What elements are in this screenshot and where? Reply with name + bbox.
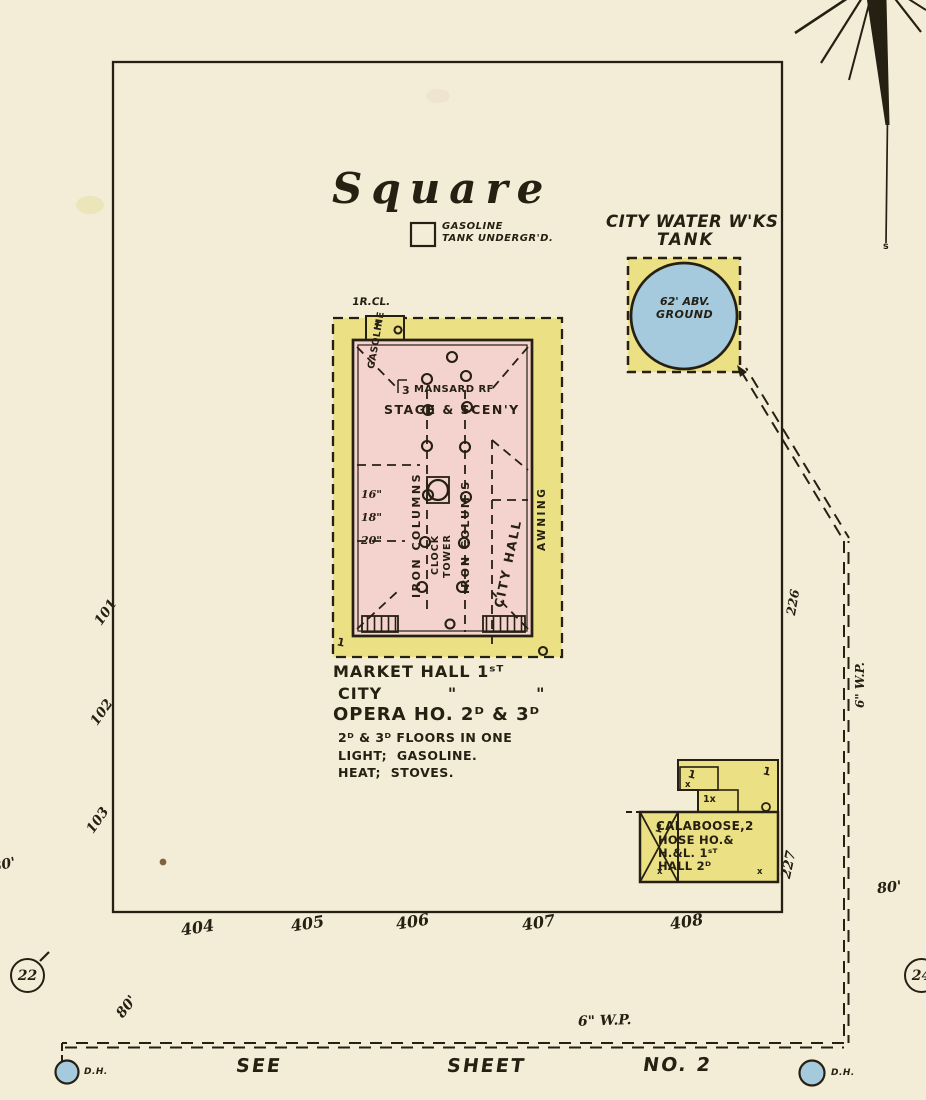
water-pipe-label-bottom: 6" W.P. — [578, 1013, 632, 1030]
clock-tower-label2: TOWER — [443, 534, 453, 578]
calaboose-line1: CALABOOSE,2 — [656, 820, 754, 833]
width-16: 16" — [361, 489, 382, 501]
stage-scenery-label: STAGE & SCEN'Y — [384, 403, 520, 416]
water-tank-elevation1: 62' ABV. — [660, 296, 710, 308]
square-title: Square — [332, 167, 552, 211]
mansard-roof-label: MANSARD RF — [414, 385, 494, 396]
rcl-label: 1R.CL. — [351, 297, 391, 308]
width-20: 20" — [361, 535, 382, 547]
calaboose-mark-x1: x — [685, 781, 690, 790]
see-sheet-word1: SEE — [235, 1057, 283, 1077]
caption-floors: 2ᴰ & 3ᴰ FLOORS IN ONE — [338, 731, 512, 744]
compass-south-label: s — [883, 242, 889, 252]
sheet-ref-tick — [40, 952, 49, 961]
water-tank-label: CITY WATER W'KS — [606, 213, 778, 230]
eighty-feet-right: 80' — [876, 879, 902, 897]
awning-label: AWNING — [537, 487, 548, 551]
caption-city: CITY " " — [338, 686, 545, 703]
gasoline-tank-symbol — [411, 223, 435, 246]
calaboose-mark-1x: 1x — [703, 795, 716, 805]
calaboose-main-x: x — [757, 868, 762, 877]
caption-light: LIGHT; GASOLINE. — [338, 749, 477, 762]
water-tank-label2: TANK — [657, 231, 714, 248]
sheet-ref-22-number: 22 — [18, 968, 37, 984]
water-tank-elevation2: GROUND — [656, 309, 713, 321]
xbox-x-mark: x — [657, 868, 662, 877]
caption-market-hall: MARKET HALL 1ˢᵀ — [333, 664, 504, 681]
calaboose-line2: HOSE HO.& — [658, 834, 734, 846]
caption-heat: HEAT; STOVES. — [338, 766, 454, 779]
story-mark: 3 — [402, 385, 410, 397]
calaboose-line3: H.&L. 1ˢᵀ — [658, 847, 718, 859]
water-pipe-label-vertical: 6" W.P. — [854, 662, 867, 708]
clock-tower-label1: CLOCK — [431, 535, 441, 575]
sheet-ref-22: 22 — [10, 958, 45, 993]
gasoline-note-line2: TANK UNDERGR'D. — [442, 234, 553, 245]
gasoline-note-line1: GASOLINE — [442, 222, 503, 233]
calaboose-line4: HALL 2ᴰ — [658, 860, 711, 872]
hydrant-label-right: D.H. — [831, 1069, 855, 1078]
width-18: 18" — [361, 512, 382, 524]
caption-opera: OPERA HO. 2ᴰ & 3ᴰ — [333, 706, 540, 725]
see-sheet-word2: SHEET — [446, 1057, 527, 1077]
iron-columns-mid-label: IRON COLUM'S — [460, 480, 472, 594]
sheet-ref-24-number: 24 — [912, 968, 926, 984]
compass-rose — [795, 0, 926, 243]
iron-columns-left-label: IRON COLUMNS — [411, 472, 423, 598]
see-sheet-word3: NO. 2 — [642, 1056, 714, 1076]
hydrant-label-left: D.H. — [84, 1068, 108, 1077]
sanborn-map-page: Square GASOLINE TANK UNDERGR'D. CITY WAT… — [0, 0, 926, 1100]
